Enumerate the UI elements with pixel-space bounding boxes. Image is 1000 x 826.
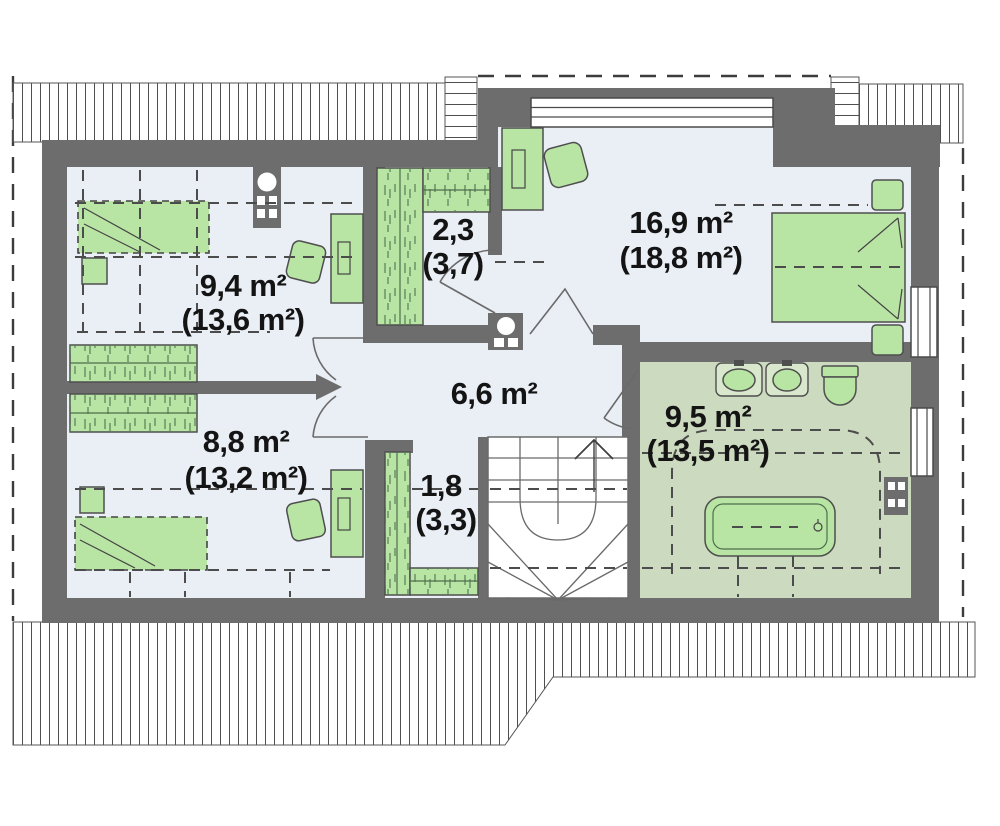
wall-bottom (42, 598, 939, 623)
bed-icon (75, 517, 207, 570)
label-bedroom-area: 16,9 m² (629, 205, 733, 240)
wall-closet18-top-stub (365, 440, 413, 453)
floor-plan-drawing: 9,4 m² (13,6 m²) 2,3 (3,7) 16,9 m² (18,8… (0, 0, 1000, 821)
desk-icon (331, 214, 363, 303)
wardrobe-icon (377, 168, 423, 325)
wall-hall-north (363, 325, 490, 343)
flue-circle-icon (258, 173, 277, 192)
desk-icon (331, 470, 363, 557)
flue-square-icon (257, 196, 265, 205)
nightstand-icon (872, 325, 903, 355)
dormer-pier-left (478, 88, 498, 167)
wall-top-left (42, 140, 490, 167)
nightstand-icon (82, 258, 107, 284)
label-hallway-area: 6,6 m² (451, 376, 538, 411)
flue-square-icon (269, 209, 277, 218)
label-bathroom-total: (13,5 m²) (647, 433, 770, 468)
wardrobe-icon (70, 394, 197, 432)
label-room94-area: 9,4 m² (200, 268, 287, 303)
dormer-cheek-left (445, 77, 477, 141)
label-closet18-area: 1,8 (420, 468, 462, 503)
label-room88-area: 8,8 m² (203, 424, 290, 459)
bathtub-icon (705, 497, 835, 556)
floor-plan-page: 9,4 m² (13,6 m²) 2,3 (3,7) 16,9 m² (18,8… (0, 0, 1000, 821)
wardrobe-icon (423, 168, 490, 212)
label-closet23-area: 2,3 (432, 212, 474, 247)
bedroom-window-icon (911, 287, 937, 357)
label-room94-total: (13,6 m²) (182, 302, 305, 337)
wardrobe-icon (385, 452, 410, 595)
chair-icon (285, 498, 326, 542)
sink-icon (766, 360, 808, 396)
winder-stairs (488, 437, 628, 600)
roof-hatch-bottom (13, 622, 975, 745)
label-bedroom-total: (18,8 m²) (620, 240, 743, 275)
flue-square-icon (257, 209, 265, 218)
flue-square-icon (888, 482, 895, 490)
flue-square-icon (508, 338, 518, 347)
vent-bathroom (884, 477, 908, 515)
bathroom-floor (640, 362, 911, 598)
sink-icon (716, 360, 762, 396)
bathroom-window-icon (911, 408, 933, 476)
label-room88-total: (13,2 m²) (185, 460, 308, 495)
nightstand-icon (872, 180, 903, 210)
wall-left-rooms-divider (67, 381, 318, 394)
wall-room88-closet18 (365, 440, 385, 598)
wall-left (42, 140, 67, 623)
chimney-hallway (488, 313, 523, 350)
wardrobe-icon (410, 568, 478, 595)
nightstand-icon (80, 487, 104, 513)
dormer-wall-left-of-window (498, 88, 531, 127)
flue-circle-icon (497, 317, 515, 335)
dormer-window-icon (531, 98, 773, 127)
wall-right (911, 125, 939, 623)
wall-stairs-left (478, 437, 488, 598)
wardrobe-icon (70, 345, 197, 382)
desk-icon (502, 128, 543, 210)
flue-square-icon (888, 499, 895, 507)
label-bathroom-area: 9,5 m² (665, 399, 752, 434)
toilet-icon (822, 366, 858, 405)
flue-square-icon (494, 338, 504, 347)
roof-hatch-top-left (13, 83, 445, 142)
chimney-room94 (253, 167, 281, 228)
label-closet18-total: (3,3) (415, 502, 476, 537)
label-closet23-total: (3,7) (422, 246, 483, 281)
wall-bedroom-bathroom (627, 342, 911, 362)
flue-square-icon (898, 482, 905, 490)
flue-square-icon (898, 499, 905, 507)
bed-icon (78, 201, 209, 253)
